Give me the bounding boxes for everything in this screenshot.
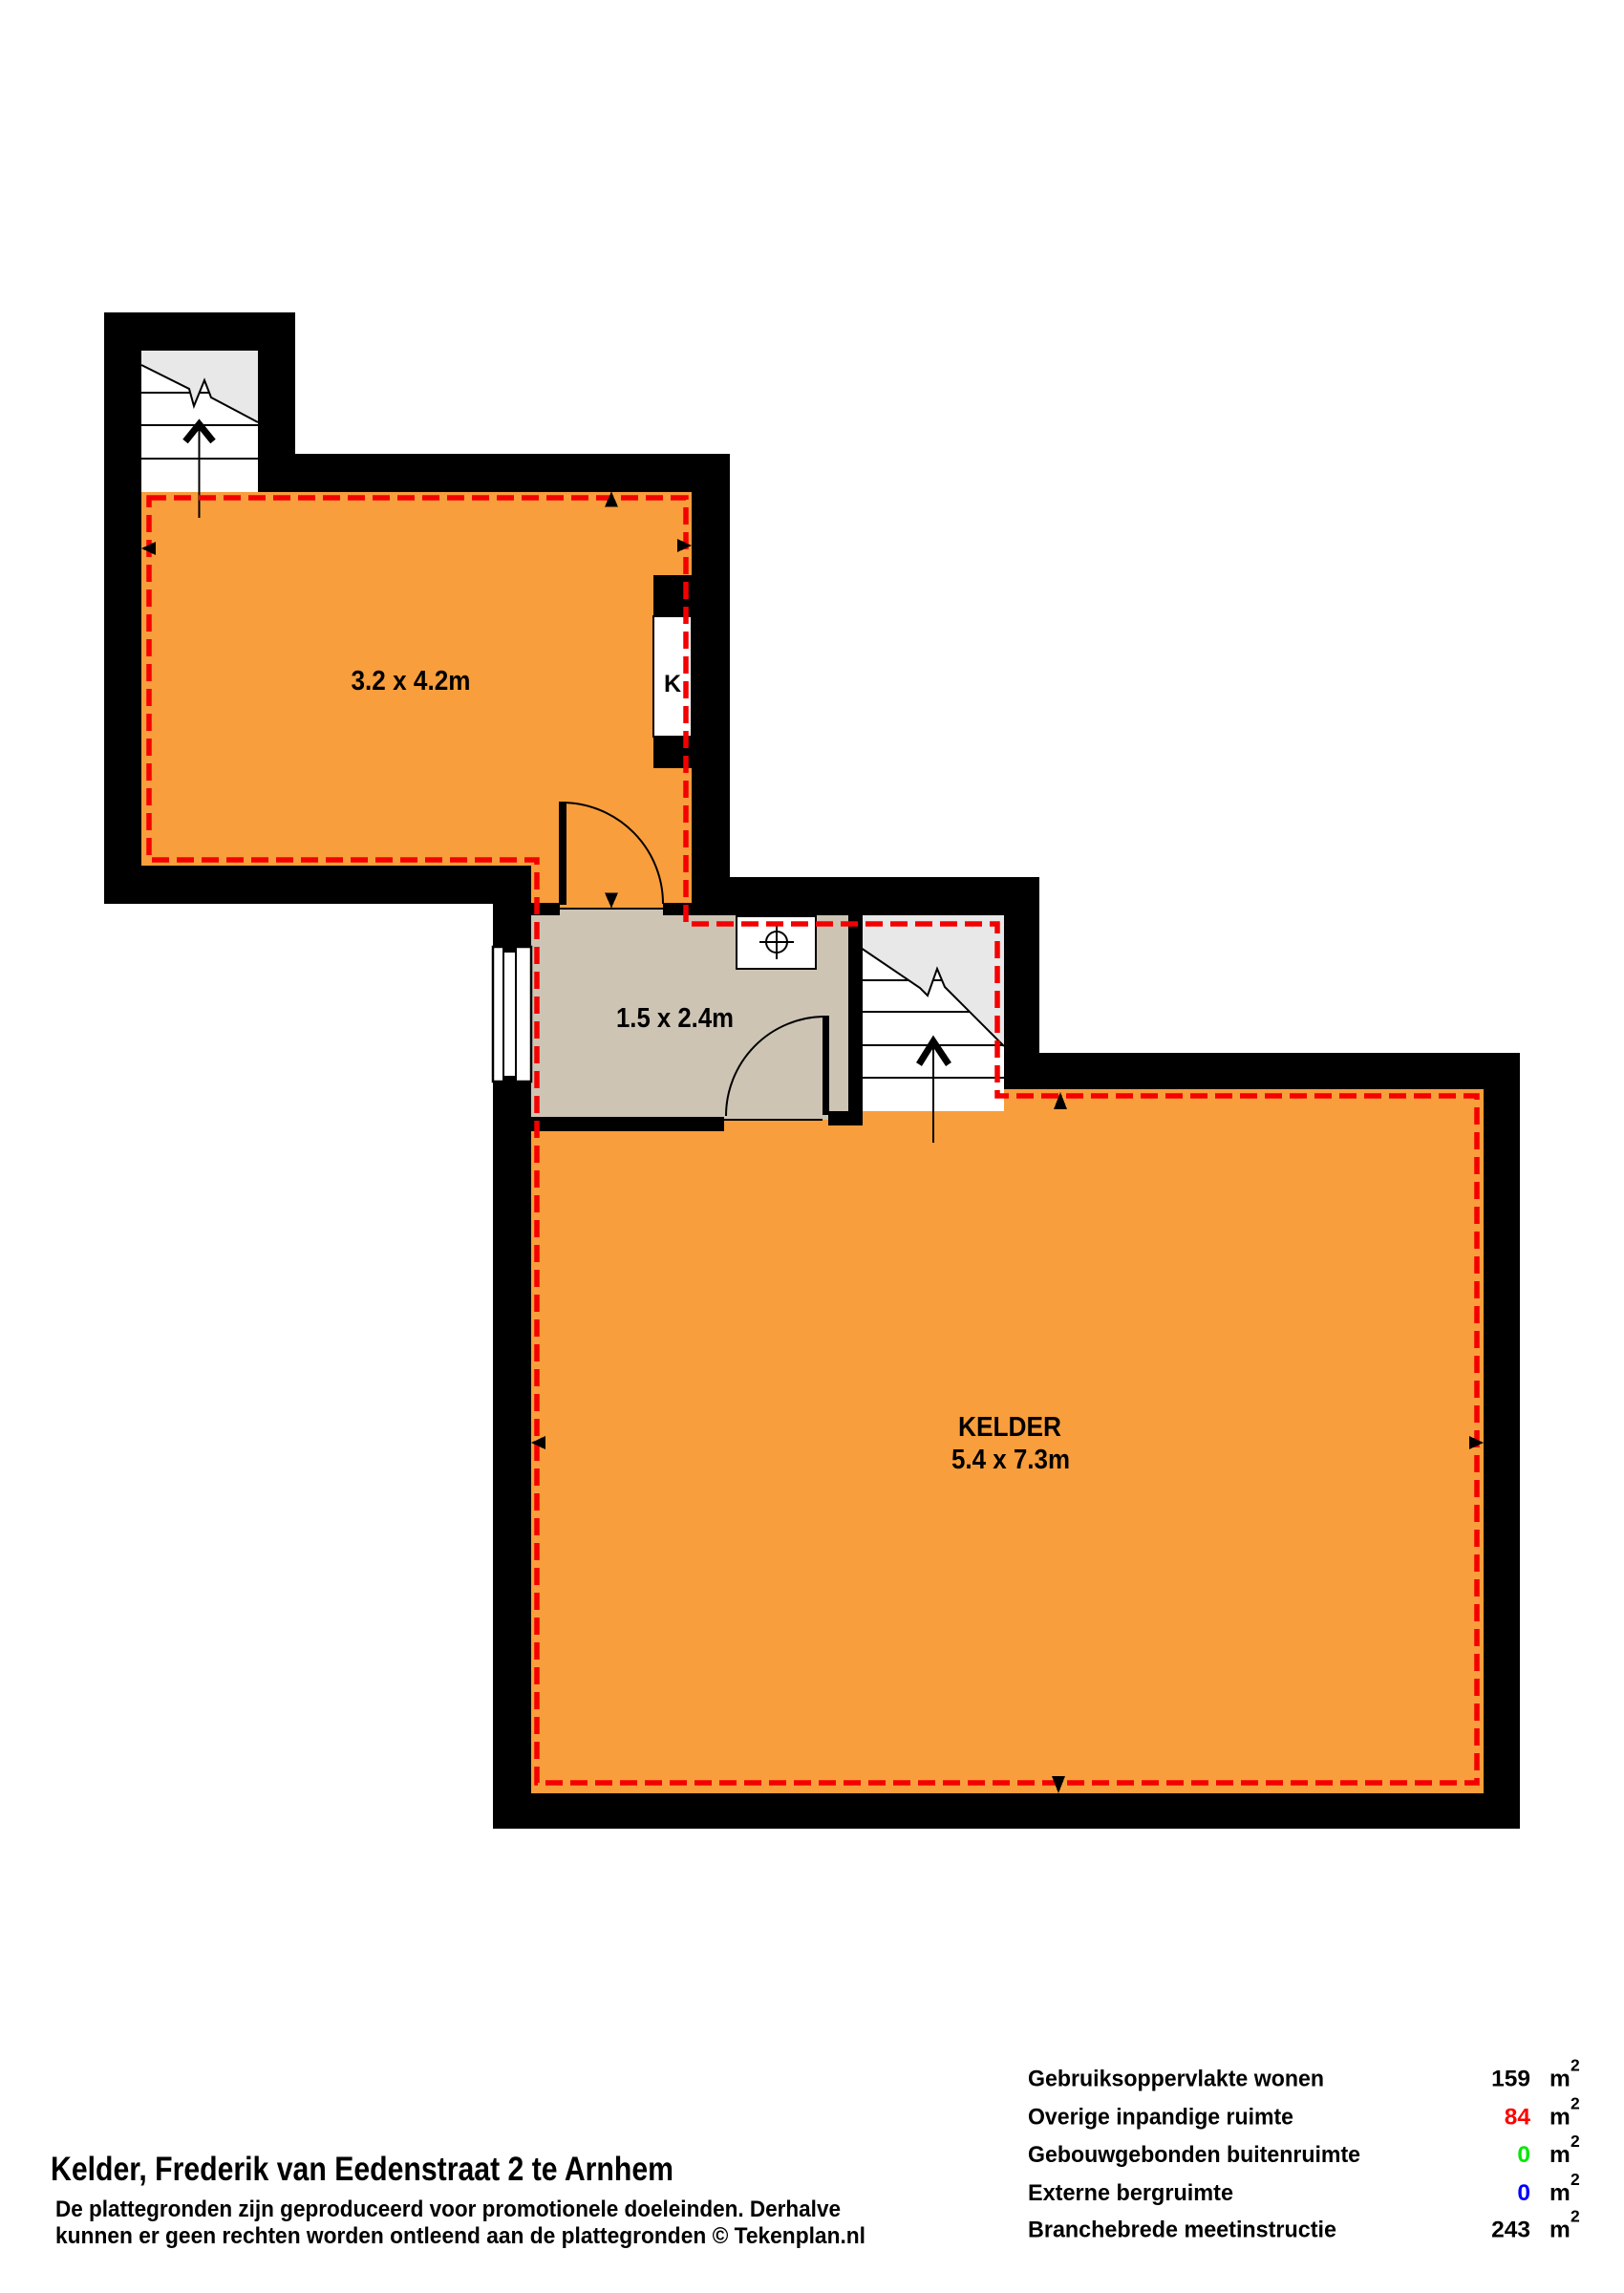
svg-text:Gebouwgebonden buitenruimte: Gebouwgebonden buitenruimte bbox=[1028, 2142, 1360, 2168]
svg-text:Gebruiksoppervlakte wonen: Gebruiksoppervlakte wonen bbox=[1028, 2067, 1324, 2092]
svg-text:3.2 x 4.2m: 3.2 x 4.2m bbox=[352, 666, 471, 696]
svg-text:Externe bergruimte: Externe bergruimte bbox=[1028, 2180, 1233, 2206]
svg-text:K: K bbox=[664, 671, 681, 697]
svg-text:kunnen er geen rechten worden: kunnen er geen rechten worden ontleend a… bbox=[55, 2223, 865, 2249]
svg-text:2: 2 bbox=[1571, 2206, 1580, 2225]
svg-text:0: 0 bbox=[1517, 2180, 1530, 2206]
svg-text:m: m bbox=[1549, 2180, 1571, 2206]
svg-text:243: 243 bbox=[1491, 2217, 1530, 2242]
svg-text:2: 2 bbox=[1571, 2093, 1580, 2112]
svg-text:2: 2 bbox=[1571, 2056, 1580, 2075]
svg-text:2: 2 bbox=[1571, 2132, 1580, 2151]
svg-text:5.4 x 7.3m: 5.4 x 7.3m bbox=[951, 1445, 1070, 1475]
svg-text:159: 159 bbox=[1491, 2067, 1530, 2092]
svg-text:m: m bbox=[1549, 2142, 1571, 2168]
svg-text:m: m bbox=[1549, 2067, 1571, 2092]
svg-text:Branchebrede meetinstructie: Branchebrede meetinstructie bbox=[1028, 2217, 1336, 2242]
svg-text:m: m bbox=[1549, 2217, 1571, 2242]
svg-text:Overige inpandige ruimte: Overige inpandige ruimte bbox=[1028, 2104, 1293, 2130]
svg-text:84: 84 bbox=[1505, 2104, 1531, 2130]
svg-text:KELDER: KELDER bbox=[958, 1412, 1061, 1443]
svg-text:Kelder, Frederik van Eedenstra: Kelder, Frederik van Eedenstraat 2 te Ar… bbox=[51, 2151, 673, 2188]
svg-text:1.5 x 2.4m: 1.5 x 2.4m bbox=[616, 1003, 734, 1034]
svg-text:2: 2 bbox=[1571, 2170, 1580, 2189]
svg-text:0: 0 bbox=[1517, 2142, 1530, 2168]
svg-text:De plattegronden zijn geproduc: De plattegronden zijn geproduceerd voor … bbox=[55, 2197, 841, 2222]
svg-text:m: m bbox=[1549, 2104, 1571, 2130]
